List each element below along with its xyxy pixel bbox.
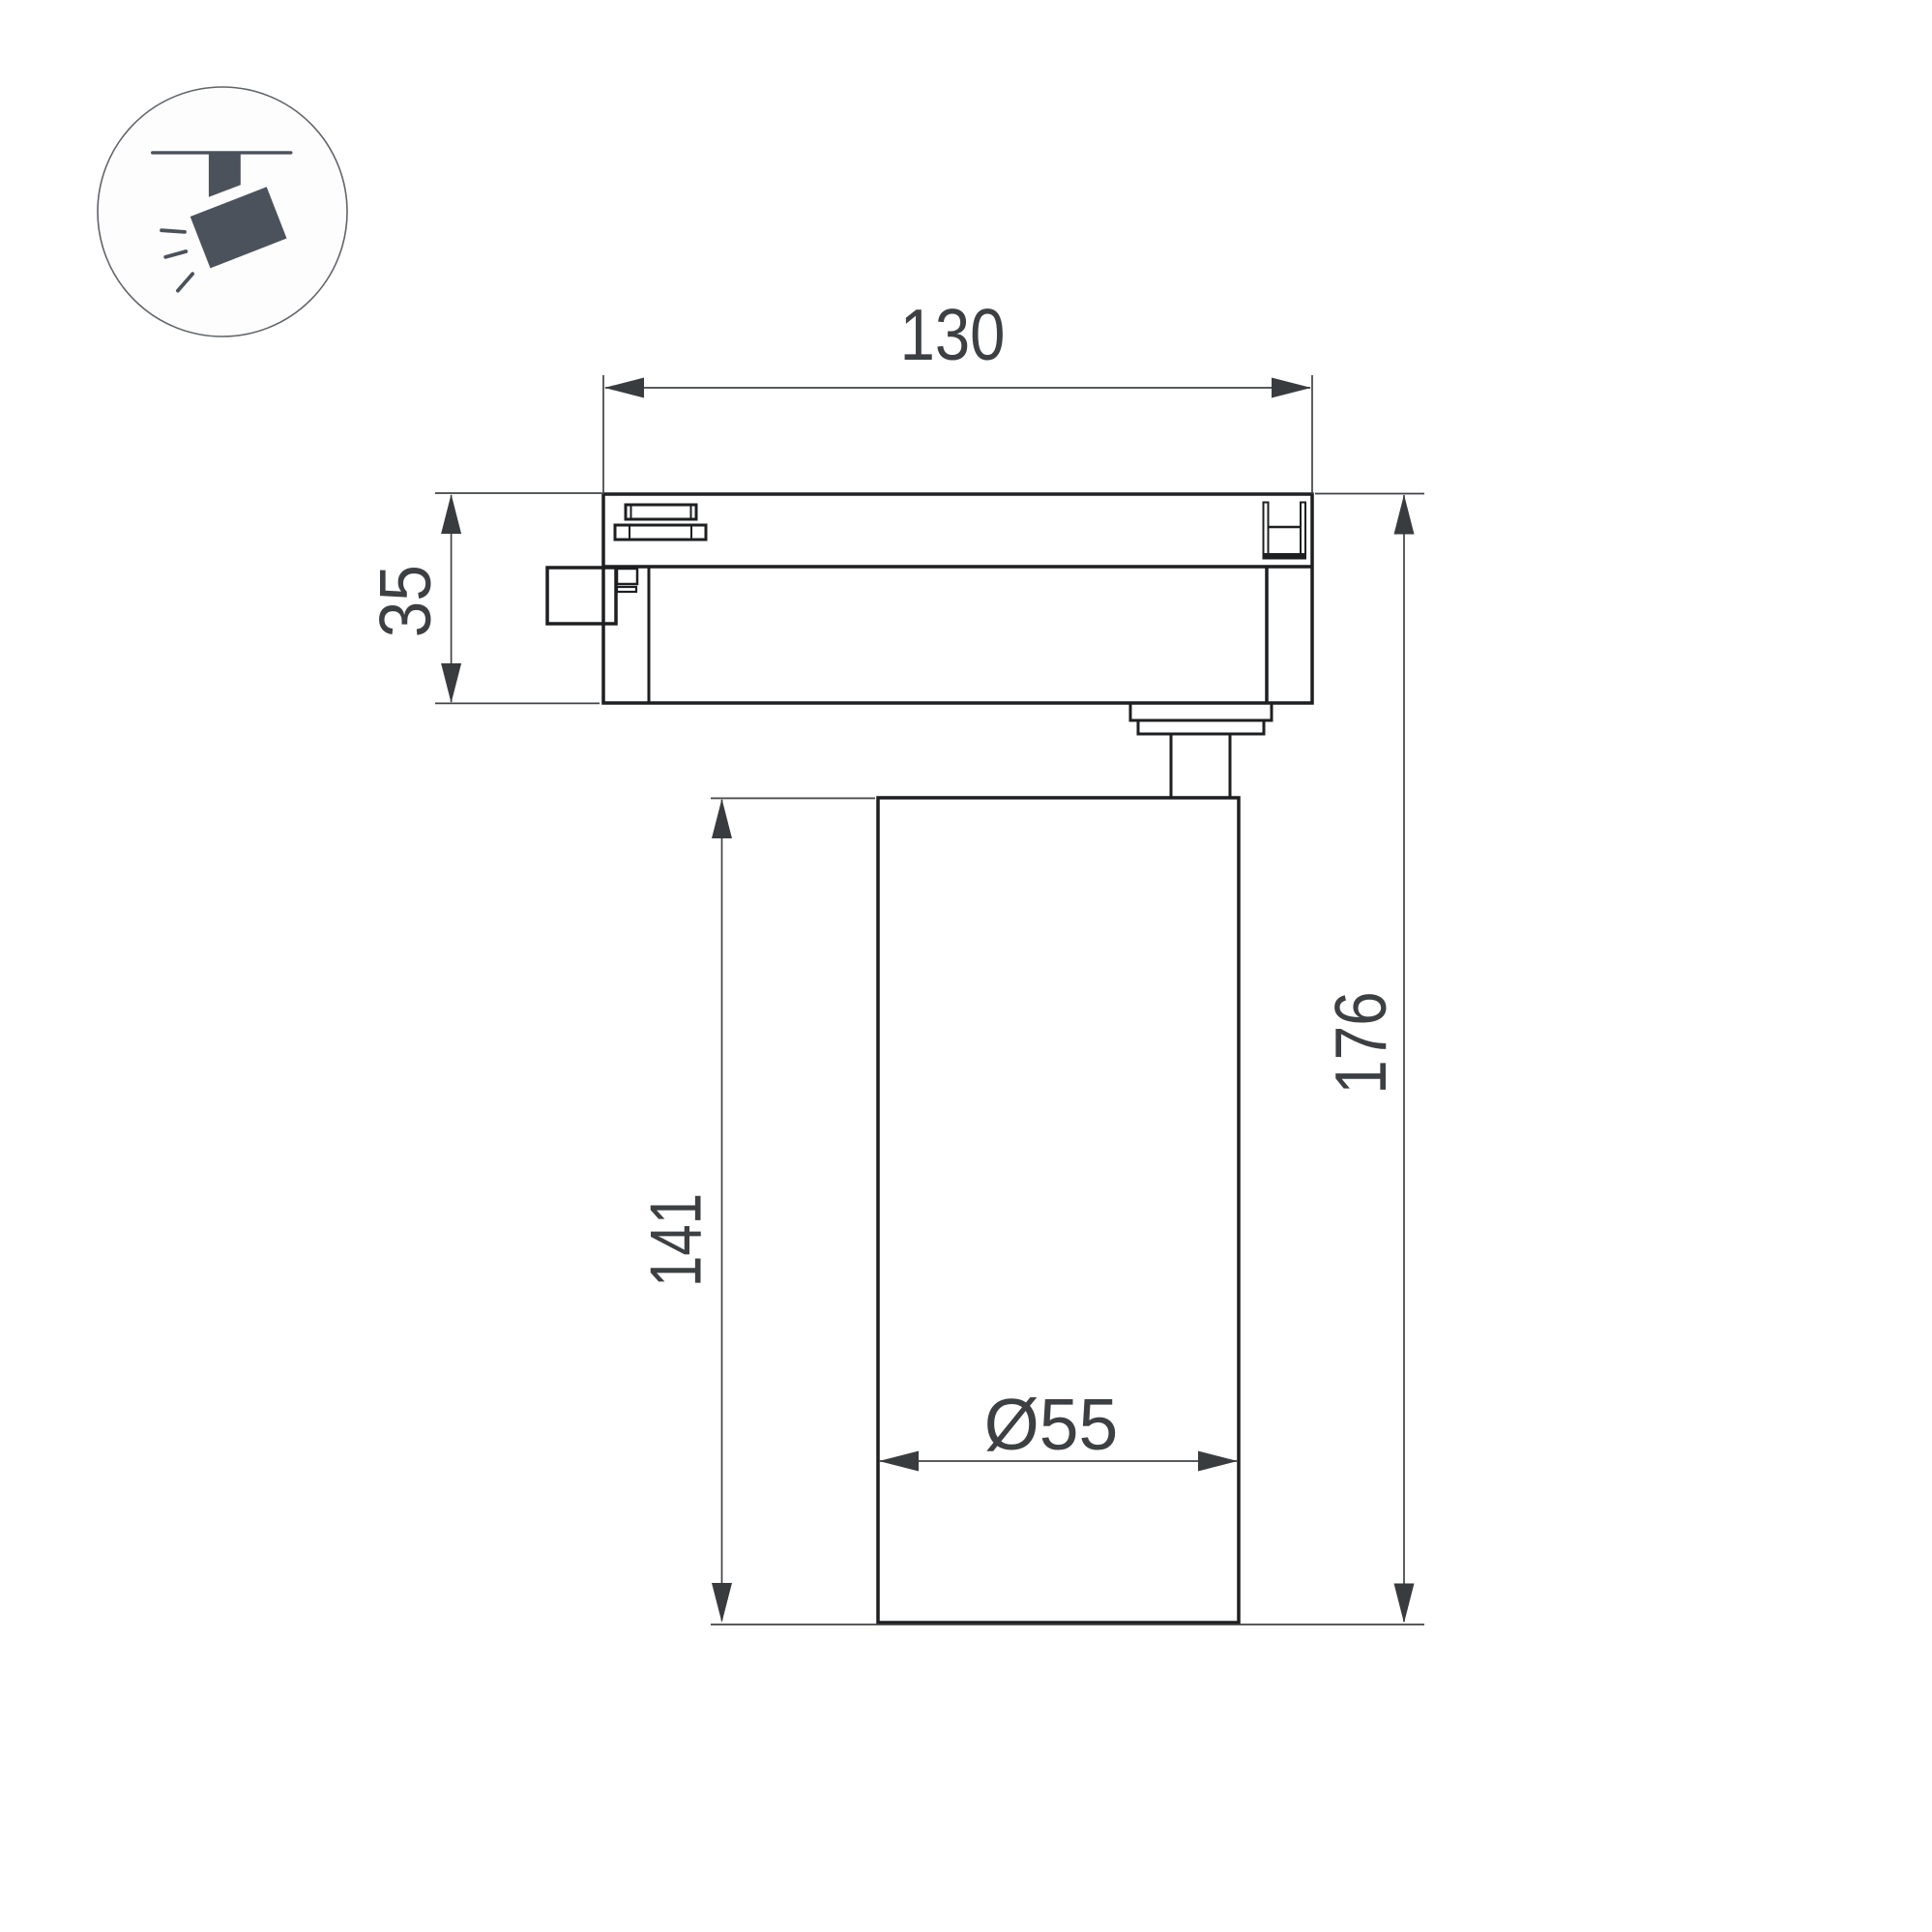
svg-text:Ø55: Ø55 [984,1384,1118,1465]
svg-text:176: 176 [1320,991,1401,1094]
svg-text:35: 35 [366,565,447,637]
svg-text:141: 141 [635,1193,717,1287]
svg-text:130: 130 [900,293,1006,375]
